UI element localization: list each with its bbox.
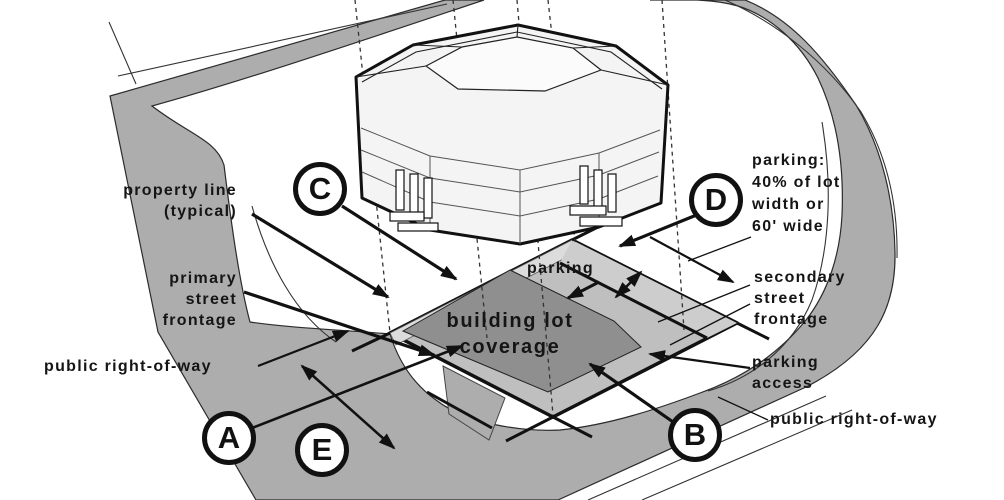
label-parking-spec: parking: 40% of lot width or 60' wide — [752, 150, 841, 238]
label-primary-street-frontage: primary street frontage — [163, 268, 237, 331]
label-line: 40% of lot — [752, 172, 841, 194]
label-line: public right-of-way — [770, 409, 938, 430]
label-line: property line — [123, 180, 237, 201]
label-line: building lot — [415, 308, 605, 334]
building-illustration — [356, 25, 668, 244]
key-marker-e: E — [295, 423, 349, 477]
label-line: street — [163, 289, 237, 310]
label-line: 60' wide — [752, 216, 841, 238]
label-building-lot-coverage: building lot coverage — [415, 308, 605, 360]
label-line: coverage — [415, 334, 605, 360]
label-public-right-of-way-right: public right-of-way — [770, 409, 938, 430]
key-marker-c: C — [293, 162, 347, 216]
key-marker-a: A — [202, 411, 256, 465]
label-line: frontage — [163, 310, 237, 331]
parking-spec-leader — [688, 237, 751, 261]
label-secondary-street-frontage: secondary street frontage — [754, 267, 846, 330]
key-marker-letter: A — [218, 420, 240, 456]
key-marker-b: B — [668, 408, 722, 462]
label-line: frontage — [754, 309, 846, 330]
label-line: access — [752, 373, 819, 394]
label-parking-center: parking — [527, 258, 594, 279]
label-line: parking — [752, 352, 819, 373]
label-line: secondary — [754, 267, 846, 288]
site-plan-diagram: property line (typical) primary street f… — [0, 0, 1004, 500]
label-line: parking — [527, 258, 594, 279]
label-line: width or — [752, 194, 841, 216]
label-line: primary — [163, 268, 237, 289]
key-marker-letter: D — [705, 182, 727, 218]
label-line: (typical) — [123, 201, 237, 222]
property-line-arrow — [252, 214, 388, 297]
label-property-line: property line (typical) — [123, 180, 237, 222]
key-marker-d: D — [689, 173, 743, 227]
label-line: parking: — [752, 150, 841, 172]
key-marker-letter: B — [684, 417, 706, 453]
label-public-right-of-way-left: public right-of-way — [44, 356, 212, 377]
label-parking-access: parking access — [752, 352, 819, 394]
label-line: public right-of-way — [44, 356, 212, 377]
label-line: street — [754, 288, 846, 309]
key-marker-letter: E — [312, 432, 333, 468]
key-marker-letter: C — [309, 171, 331, 207]
